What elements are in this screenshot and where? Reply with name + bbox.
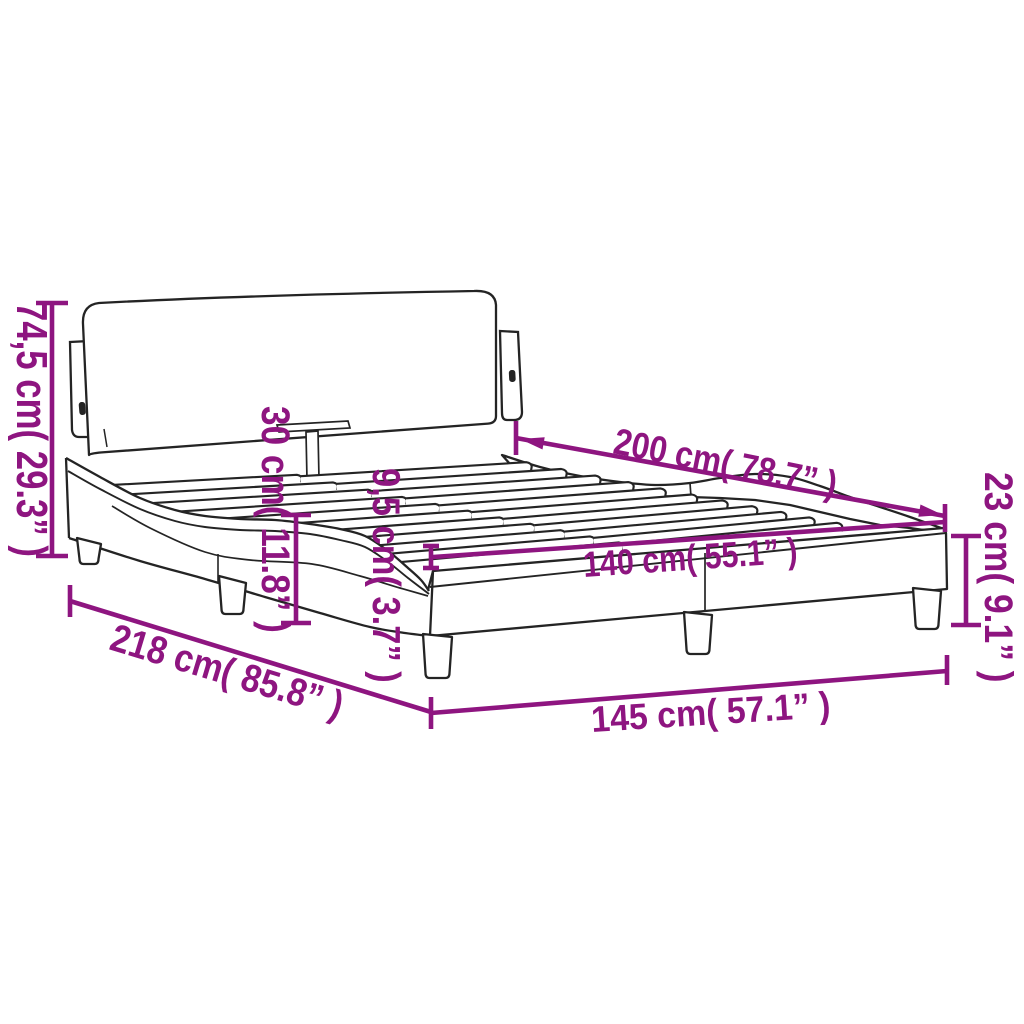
- svg-text:9,5 cm( 3.7” ): 9,5 cm( 3.7” ): [365, 468, 408, 683]
- svg-text:74,5 cm( 29.3” ): 74,5 cm( 29.3” ): [7, 302, 56, 557]
- svg-text:218 cm( 85.8” ): 218 cm( 85.8” ): [106, 615, 349, 726]
- svg-text:23 cm( 9.1” ): 23 cm( 9.1” ): [975, 472, 1019, 683]
- svg-text:145 cm( 57.1” ): 145 cm( 57.1” ): [590, 685, 832, 740]
- svg-text:30 cm( 11.8” ): 30 cm( 11.8” ): [254, 406, 299, 633]
